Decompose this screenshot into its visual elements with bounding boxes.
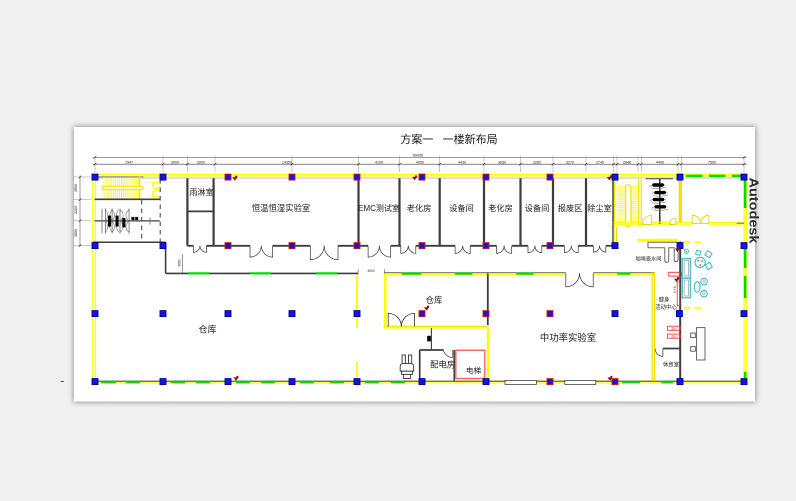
- svg-text:器材: 器材: [671, 327, 677, 331]
- svg-text:7500: 7500: [708, 160, 716, 164]
- svg-text:3800: 3800: [74, 229, 78, 237]
- svg-text:3000: 3000: [178, 259, 182, 266]
- svg-text:跑步机: 跑步机: [672, 285, 676, 293]
- svg-text:3000: 3000: [171, 160, 179, 164]
- svg-text:14350: 14350: [282, 160, 292, 164]
- svg-text:方案一 一楼新布局: 方案一 一楼新布局: [400, 132, 497, 146]
- svg-text:配电房: 配电房: [430, 360, 455, 370]
- svg-text:3000: 3000: [197, 160, 205, 164]
- svg-text:7947: 7947: [125, 160, 133, 164]
- svg-text:4100: 4100: [375, 160, 383, 164]
- svg-text:4430: 4430: [458, 160, 466, 164]
- svg-text:报废区: 报废区: [558, 203, 583, 213]
- svg-text:4400: 4400: [656, 160, 664, 164]
- svg-text:2848: 2848: [623, 160, 631, 164]
- svg-text:EMC测试室: EMC测试室: [358, 203, 400, 213]
- svg-text:活动中心: 活动中心: [655, 303, 677, 311]
- svg-text:设备间: 设备间: [449, 203, 474, 213]
- svg-text:69936: 69936: [413, 153, 423, 157]
- svg-text:仓库: 仓库: [198, 324, 216, 335]
- svg-text:2740: 2740: [596, 160, 604, 164]
- svg-text:3270: 3270: [566, 160, 574, 164]
- svg-text:恒温恒湿实验室: 恒温恒湿实验室: [252, 203, 311, 213]
- svg-text:健身: 健身: [659, 295, 670, 303]
- svg-text:中功率实验室: 中功率实验室: [540, 332, 596, 343]
- svg-text:电梯: 电梯: [466, 365, 482, 375]
- svg-text:3000: 3000: [367, 269, 374, 273]
- svg-text:设备间: 设备间: [525, 203, 550, 213]
- svg-text:3650: 3650: [498, 160, 506, 164]
- svg-text:3260: 3260: [533, 160, 541, 164]
- svg-text:4000: 4000: [416, 160, 424, 164]
- svg-text:Autodesk: Autodesk: [747, 178, 762, 245]
- svg-text:3200: 3200: [74, 206, 78, 214]
- svg-text:雨淋室: 雨淋室: [190, 187, 214, 197]
- svg-text:老化房: 老化房: [407, 203, 432, 213]
- svg-text:咖啡壶水间: 咖啡壶水间: [636, 255, 662, 263]
- svg-text:休息室: 休息室: [663, 361, 680, 369]
- svg-text:仓库: 仓库: [426, 295, 443, 305]
- svg-text:器材: 器材: [671, 335, 677, 339]
- svg-text:除尘室: 除尘室: [587, 203, 612, 213]
- svg-text:老化房: 老化房: [488, 203, 513, 213]
- svg-text:3500: 3500: [74, 184, 78, 192]
